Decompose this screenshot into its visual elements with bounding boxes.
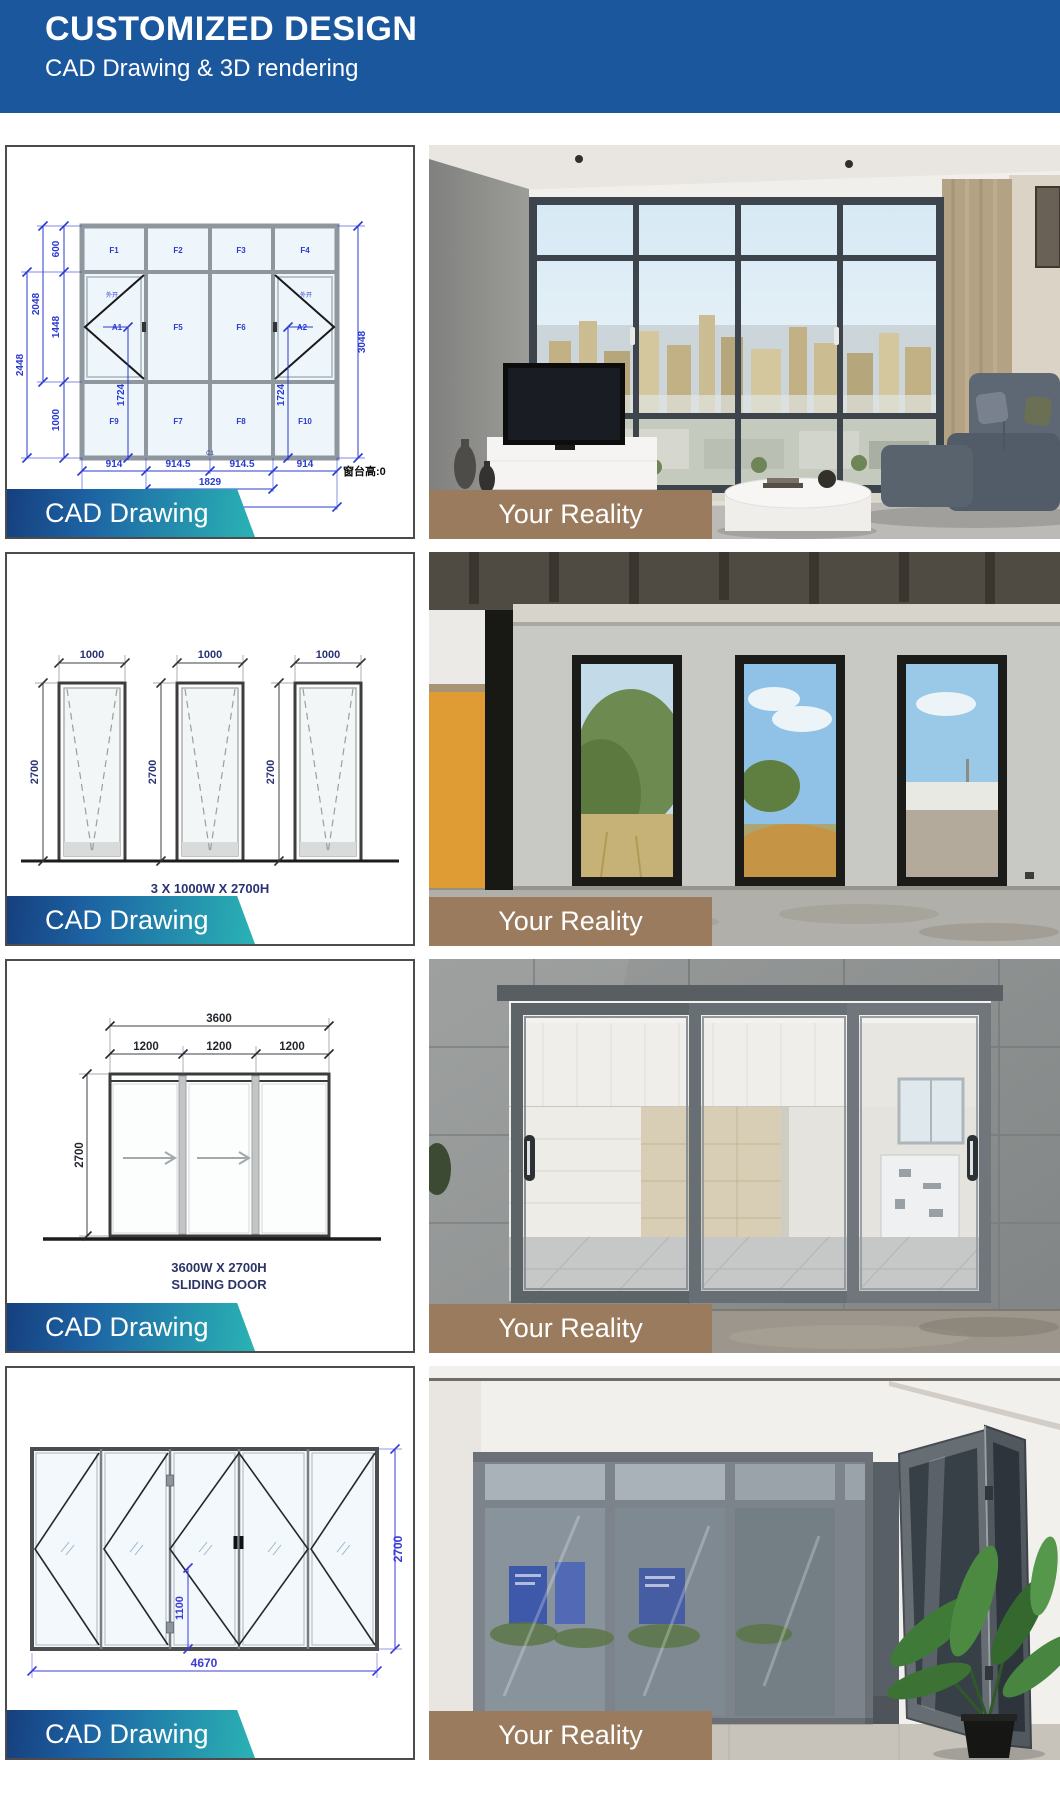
- page-subtitle: CAD Drawing & 3D rendering: [45, 55, 1060, 83]
- row-folding-door: 2700 4670 1100 CAD Drawing: [0, 1366, 1060, 1760]
- center-label: C1: [206, 451, 214, 457]
- page-title: CUSTOMIZED DESIGN: [45, 11, 1060, 48]
- your-reality-band: Your Reality: [429, 897, 712, 946]
- dim-label: 1448: [51, 315, 62, 338]
- cell-label: F9: [109, 417, 119, 426]
- dim-label: 1000: [51, 408, 62, 431]
- header-banner: CUSTOMIZED DESIGN CAD Drawing & 3D rende…: [0, 0, 1060, 113]
- pillow: [975, 391, 1009, 425]
- cad-drawing-panel-3: 3600 1200 1200 1200 2700 3600W X 2700H S…: [5, 959, 415, 1353]
- dim-label: 1000: [80, 649, 104, 661]
- narrow-window-1: [561, 655, 686, 886]
- cad-caption-line1: 3600W X 2700H: [171, 1260, 266, 1275]
- hinge-mark: [167, 1622, 174, 1633]
- dim-label: 2700: [391, 1535, 405, 1562]
- cell-label: F7: [173, 417, 183, 426]
- narrow-windows-photo-svg: [429, 552, 1060, 946]
- dim-label: 3048: [357, 330, 368, 353]
- cad-drawing-label: CAD Drawing: [45, 498, 209, 528]
- door-unit: [177, 683, 243, 861]
- door-unit: [59, 683, 125, 861]
- dim-label: 1829: [199, 477, 222, 488]
- folding-door-frame: [473, 1452, 899, 1724]
- folding-door-photo-svg: [429, 1366, 1060, 1760]
- page: { "header": { "title": "CUSTOMIZED DESIG…: [0, 0, 1060, 1799]
- handle-mark: [240, 1536, 244, 1549]
- dim-label: 914: [297, 459, 314, 470]
- window-handle: [834, 327, 839, 345]
- dim-label: 1200: [206, 1041, 232, 1053]
- cell-label: F5: [173, 323, 183, 332]
- sill-height-note: 窗台高:0: [343, 464, 386, 478]
- your-reality-band: Your Reality: [429, 1711, 712, 1760]
- cad-drawing-ribbon: CAD Drawing: [7, 1710, 255, 1758]
- cad-drawing-label: CAD Drawing: [45, 905, 209, 935]
- photo-narrow-windows-room: Your Reality: [429, 552, 1060, 946]
- ottoman: [881, 445, 973, 507]
- cell-label: F1: [109, 246, 119, 255]
- table-bowl: [818, 470, 836, 488]
- photo-sliding-door: Your Reality: [429, 959, 1060, 1353]
- cell-label: F10: [298, 417, 312, 426]
- wall-picture-frame: [1036, 187, 1060, 267]
- pillow: [1024, 396, 1053, 427]
- row-hinged-doors: 1000 1000 1000 2700 2700 2700 3 X 1000W …: [0, 552, 1060, 946]
- cad-doors-drawing-svg: 1000 1000 1000 2700 2700 2700 3 X 1000W …: [7, 554, 413, 944]
- dim-label: 1200: [133, 1041, 159, 1053]
- door-track: [497, 985, 1003, 1001]
- narrow-window-2: [735, 655, 845, 886]
- cad-drawing-ribbon: CAD Drawing: [7, 489, 255, 537]
- living-room-photo-svg: [429, 145, 1060, 539]
- your-reality-band: Your Reality: [429, 1304, 712, 1353]
- dim-label: 2700: [74, 1142, 86, 1168]
- narrow-window-3: [897, 655, 1007, 886]
- dim-label: 2048: [31, 292, 42, 315]
- cad-caption-line2: SLIDING DOOR: [171, 1277, 267, 1292]
- cad-sliding-door-drawing-svg: 3600 1200 1200 1200 2700 3600W X 2700H S…: [7, 961, 413, 1351]
- dim-label: 1100: [174, 1596, 186, 1620]
- dim-label: 2700: [29, 760, 41, 784]
- dim-label: 1000: [316, 649, 340, 661]
- row-casement-window: F1 F2 F3 F4 A1 F5 F6 A2 F9 F7 F8 F10 外开 …: [0, 145, 1060, 539]
- open-note: 外开: [300, 291, 312, 299]
- ceiling-light: [845, 160, 853, 168]
- dim-label: 914: [106, 459, 123, 470]
- your-reality-label: Your Reality: [498, 499, 643, 530]
- interior-through-glass: [509, 1001, 991, 1301]
- cad4-folding-door: [32, 1449, 377, 1649]
- exposed-ceiling: [429, 552, 1060, 626]
- dim-label: 3600: [206, 1013, 232, 1025]
- dim-label: 914.5: [229, 459, 254, 470]
- your-reality-label: Your Reality: [498, 906, 643, 937]
- dim-label: 1000: [198, 649, 222, 661]
- cad-folding-door-drawing-svg: 2700 4670 1100: [7, 1368, 413, 1758]
- dim-label: 914.5: [165, 459, 190, 470]
- cad-drawing-label: CAD Drawing: [45, 1312, 209, 1342]
- handle-mark-left: [142, 322, 146, 332]
- cell-label: F4: [300, 246, 310, 255]
- photo-folding-door: Your Reality: [429, 1366, 1060, 1760]
- dim-label: 1724: [276, 383, 287, 406]
- cell-label: F6: [236, 323, 246, 332]
- hinge-mark: [167, 1475, 174, 1486]
- dim-label: 2700: [265, 760, 277, 784]
- row-sliding-door: 3600 1200 1200 1200 2700 3600W X 2700H S…: [0, 959, 1060, 1353]
- dim-label: 1200: [279, 1041, 305, 1053]
- dim-label: 2448: [15, 353, 26, 376]
- handle-mark-right: [273, 322, 277, 332]
- cad3-sliding-door: [43, 1074, 381, 1239]
- photo-living-room-windows: Your Reality: [429, 145, 1060, 539]
- cell-label: F8: [236, 417, 246, 426]
- cell-label: F2: [173, 246, 183, 255]
- hinge: [985, 1486, 993, 1500]
- window-handle: [630, 327, 635, 345]
- your-reality-label: Your Reality: [498, 1313, 643, 1344]
- cad-drawing-panel-2: 1000 1000 1000 2700 2700 2700 3 X 1000W …: [5, 552, 415, 946]
- cad-drawing-ribbon: CAD Drawing: [7, 1303, 255, 1351]
- dim-label: 600: [51, 240, 62, 257]
- cad-drawing-ribbon: CAD Drawing: [7, 896, 255, 944]
- open-note: 外开: [106, 291, 118, 299]
- cad2-doors: [21, 683, 399, 861]
- door-unit: [295, 683, 361, 861]
- ceiling-light: [575, 155, 583, 163]
- cad-caption: 3 X 1000W X 2700H: [151, 881, 270, 896]
- your-reality-label: Your Reality: [498, 1720, 643, 1751]
- dim-label: 2700: [147, 760, 159, 784]
- hinge: [985, 1666, 993, 1680]
- sliding-door-photo-svg: [429, 959, 1060, 1353]
- cad-drawing-label: CAD Drawing: [45, 1719, 209, 1749]
- cad-drawing-panel-4: 2700 4670 1100 CAD Drawing: [5, 1366, 415, 1760]
- dim-label: 1724: [116, 383, 127, 406]
- dim-label: 4670: [191, 1656, 218, 1670]
- handle-mark: [234, 1536, 238, 1549]
- cad-window-drawing-svg: F1 F2 F3 F4 A1 F5 F6 A2 F9 F7 F8 F10 外开 …: [7, 147, 413, 537]
- cell-label: F3: [236, 246, 246, 255]
- cad-drawing-panel-1: F1 F2 F3 F4 A1 F5 F6 A2 F9 F7 F8 F10 外开 …: [5, 145, 415, 539]
- wall-outlet: [1025, 872, 1034, 879]
- your-reality-band: Your Reality: [429, 490, 712, 539]
